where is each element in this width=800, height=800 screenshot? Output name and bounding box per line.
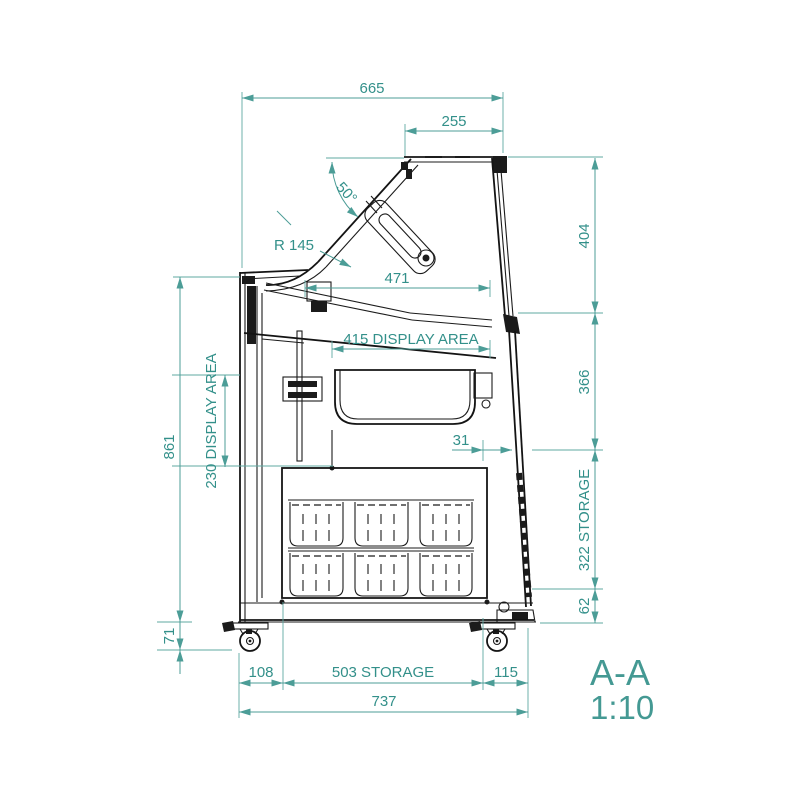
display-well bbox=[330, 370, 493, 471]
dim-label-737: 737 bbox=[371, 693, 396, 710]
dim-label-322: 322 STORAGE bbox=[576, 469, 593, 571]
dim-label-415: 415 DISPLAY AREA bbox=[343, 331, 478, 348]
insulation-block bbox=[247, 286, 256, 344]
dim-overall-depth-bottom: 737 bbox=[239, 693, 528, 712]
dim-storage-section-height: 322 STORAGE bbox=[576, 450, 595, 589]
front-glass bbox=[492, 158, 520, 334]
well-bracket bbox=[474, 373, 492, 398]
dim-label-503: 503 STORAGE bbox=[332, 664, 434, 681]
rear-top-sill bbox=[242, 276, 255, 284]
storage-compartment bbox=[280, 468, 490, 605]
dim-front-bottom-offset: 115 bbox=[483, 664, 528, 683]
dim-label-50deg: 50° bbox=[332, 179, 360, 207]
dim-display-area-height: 230 DISPLAY AREA bbox=[203, 353, 225, 488]
rear-wall bbox=[240, 270, 308, 622]
dim-label-r145: R 145 bbox=[274, 237, 314, 254]
dim-glass-panel-offset: 31 bbox=[452, 432, 512, 450]
front-panel bbox=[497, 330, 535, 622]
dim-caster-height: 71 bbox=[161, 600, 180, 674]
dim-label-230: 230 DISPLAY AREA bbox=[203, 353, 220, 488]
dim-label-471: 471 bbox=[384, 270, 409, 287]
dim-rear-bottom-offset: 108 bbox=[239, 664, 283, 683]
dim-label-366: 366 bbox=[576, 369, 593, 394]
canopy bbox=[264, 282, 492, 327]
dim-label-255: 255 bbox=[441, 113, 466, 130]
dim-label-31: 31 bbox=[453, 432, 470, 449]
dim-base-height: 62 bbox=[576, 589, 595, 623]
dim-canopy-depth: 471 bbox=[305, 270, 490, 288]
dim-upper-section-height: 404 bbox=[576, 158, 595, 313]
caster-front bbox=[469, 621, 515, 651]
section-scale: 1:10 bbox=[590, 689, 654, 726]
cabinet-outline bbox=[222, 156, 536, 651]
technical-drawing-page: 665 255 50° R 145 471 415 DISPLAY AREA 3… bbox=[0, 0, 800, 800]
lid-handle bbox=[361, 196, 439, 277]
dim-label-665: 665 bbox=[359, 80, 384, 97]
view-label: A-A 1:10 bbox=[590, 652, 654, 726]
dim-label-108: 108 bbox=[248, 664, 273, 681]
light-fixture bbox=[307, 282, 331, 301]
dim-label-115: 115 bbox=[494, 664, 518, 681]
dim-label-861: 861 bbox=[161, 434, 178, 459]
storage-tub-row-bottom bbox=[290, 553, 472, 596]
lid-hinge bbox=[401, 162, 408, 170]
technical-drawing: 665 255 50° R 145 471 415 DISPLAY AREA 3… bbox=[0, 0, 800, 800]
dim-label-71: 71 bbox=[161, 628, 178, 645]
dim-lid-top-width: 255 bbox=[405, 113, 503, 131]
storage-tub-row-top bbox=[290, 502, 472, 546]
dim-lid-angle: 50° bbox=[332, 162, 360, 217]
dim-overall-width-top: 665 bbox=[242, 80, 503, 98]
dim-middle-section-height: 366 bbox=[576, 313, 595, 450]
section-name: A-A bbox=[590, 652, 650, 693]
glass-junction bbox=[503, 314, 520, 334]
dim-label-62: 62 bbox=[576, 598, 593, 615]
dim-storage-depth: 503 STORAGE bbox=[283, 664, 483, 683]
caster-rear bbox=[222, 621, 268, 651]
dim-label-404: 404 bbox=[576, 223, 593, 248]
dim-overall-height: 861 bbox=[161, 277, 180, 650]
dim-display-area-depth: 415 DISPLAY AREA bbox=[332, 331, 490, 349]
